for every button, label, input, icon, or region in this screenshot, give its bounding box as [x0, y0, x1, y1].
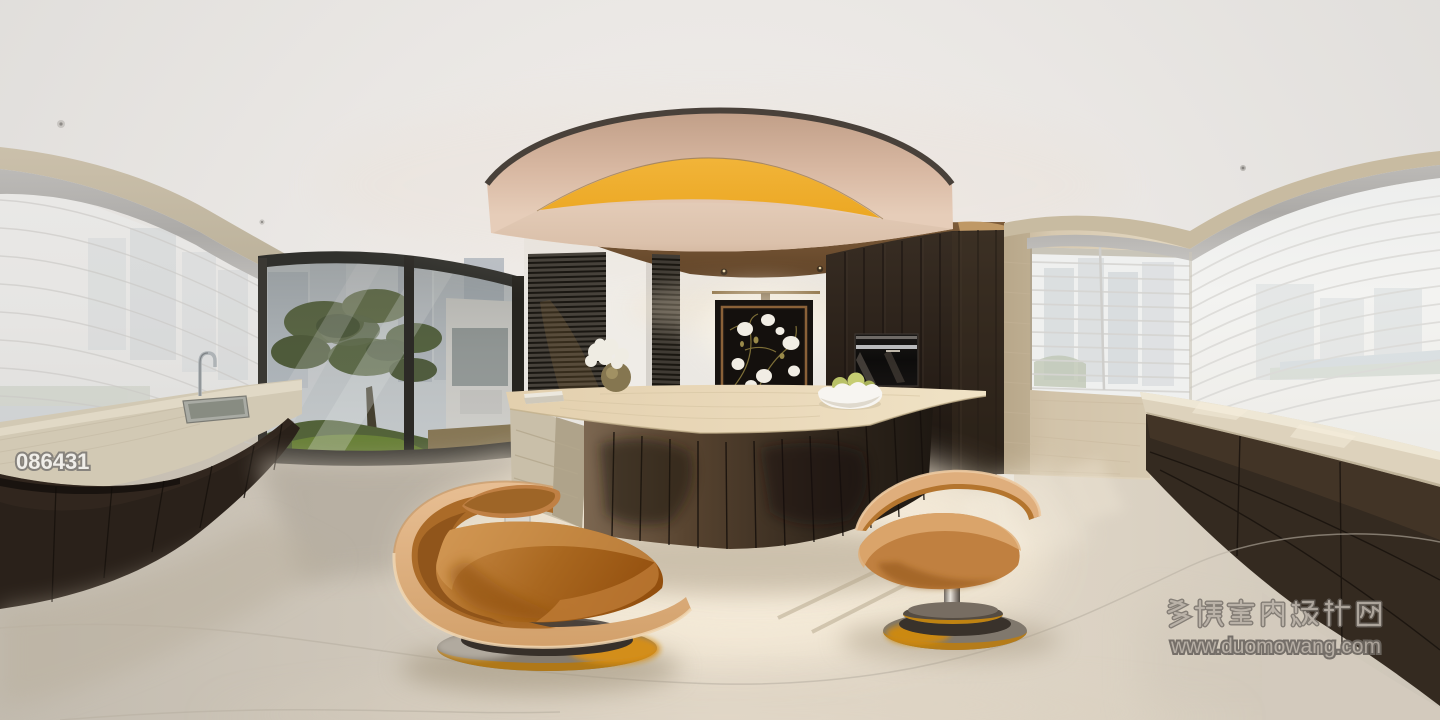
- svg-text:086431: 086431: [16, 449, 89, 474]
- svg-text:www.duomowang.com: www.duomowang.com: [1170, 635, 1381, 658]
